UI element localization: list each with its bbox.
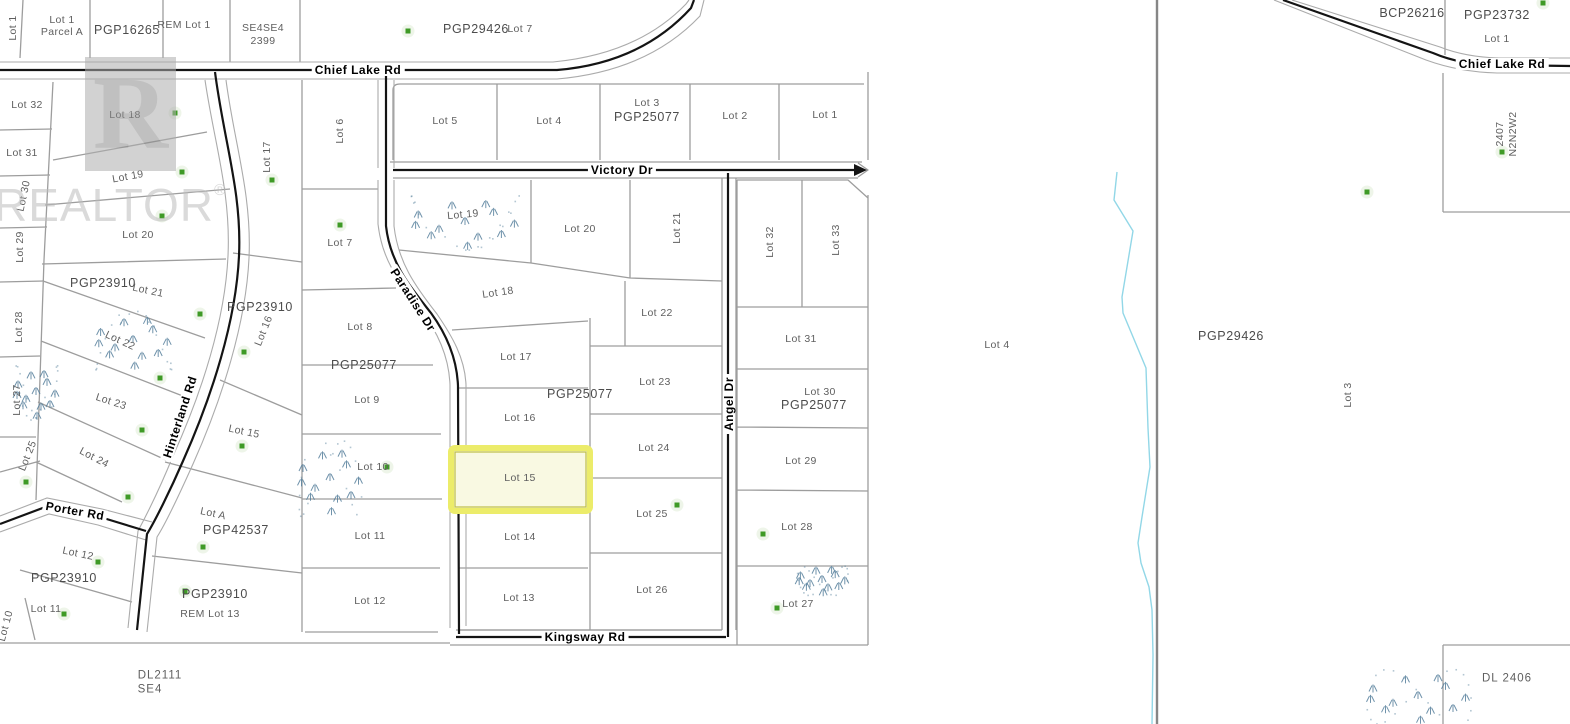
- label-lot-15: Lot 15: [227, 424, 260, 441]
- label-lot-17: Lot 17: [500, 352, 532, 363]
- label-paradise-dr: Paradise Dr: [387, 264, 440, 336]
- label-lot-27: Lot 27: [12, 384, 23, 416]
- label-lot-31: Lot 31: [785, 334, 817, 345]
- label-lot-16: Lot 16: [504, 413, 536, 424]
- label-lot-11: Lot 11: [355, 531, 386, 542]
- label-lot-27: Lot 27: [782, 599, 814, 610]
- label-2407: 2407: [1495, 122, 1506, 147]
- label-pgp25077: PGP25077: [331, 359, 397, 372]
- label-lot-10: Lot 10: [0, 609, 15, 642]
- label-lot-29: Lot 29: [785, 456, 817, 467]
- label-2399: 2399: [251, 36, 276, 47]
- label-lot-1: Lot 1: [49, 15, 74, 26]
- label-lot-30: Lot 30: [16, 179, 33, 212]
- label-rem-lot-1: REM Lot 1: [157, 20, 210, 31]
- label-parcel-a: Parcel A: [41, 27, 83, 38]
- label-lot-3: Lot 3: [634, 98, 659, 109]
- label-n2n2w2: N2N2W2: [1508, 112, 1519, 157]
- label-pgp23910: PGP23910: [70, 277, 136, 290]
- label-lot-9: Lot 9: [354, 395, 379, 406]
- label-lot-12: Lot 12: [61, 546, 94, 563]
- label-lot-22: Lot 22: [641, 308, 673, 319]
- label-se4: SE4: [138, 684, 163, 696]
- label-lot-3: Lot 3: [1343, 382, 1354, 407]
- label-lot-24: Lot 24: [638, 443, 670, 454]
- label-lot-13: Lot 13: [503, 593, 535, 604]
- label-lot-23: Lot 23: [639, 377, 671, 388]
- label-kingsway-rd: Kingsway Rd: [542, 631, 629, 643]
- label-lot-28: Lot 28: [14, 311, 25, 343]
- label-rem-lot-13: REM Lot 13: [180, 609, 239, 620]
- label-lot-14: Lot 14: [504, 532, 536, 543]
- label-se4se4: SE4SE4: [242, 23, 284, 34]
- label-lot-21: Lot 21: [131, 283, 164, 300]
- label-lot-7: Lot 7: [327, 238, 352, 249]
- label-lot-18: Lot 18: [482, 286, 515, 301]
- label-pgp29426: PGP29426: [443, 23, 509, 36]
- label-lot-10: Lot 10: [357, 462, 389, 473]
- label-dl-2406: DL 2406: [1482, 673, 1532, 685]
- label-lot-26: Lot 26: [636, 585, 668, 596]
- label-lot-23: Lot 23: [94, 392, 127, 412]
- label-pgp16265: PGP16265: [94, 24, 160, 37]
- label-lot-1: Lot 1: [1484, 34, 1509, 45]
- label-lot-33: Lot 33: [831, 224, 842, 256]
- label-lot-17: Lot 17: [262, 141, 273, 173]
- label-lot-21: Lot 21: [672, 212, 683, 244]
- label-lot-32: Lot 32: [765, 226, 776, 258]
- label-lot-6: Lot 6: [335, 118, 346, 143]
- label-hinterland-rd: Hinterland Rd: [160, 372, 200, 462]
- map-labels: Lot 1Lot 1Parcel APGP16265REM Lot 1SE4SE…: [0, 0, 1570, 724]
- label-lot-19: Lot 19: [447, 208, 479, 221]
- label-lot-31: Lot 31: [6, 148, 38, 159]
- cadastral-map: Lot 1Lot 1Parcel APGP16265REM Lot 1SE4SE…: [0, 0, 1570, 724]
- label-chief-lake-rd: Chief Lake Rd: [1456, 58, 1549, 70]
- label-lot-4: Lot 4: [984, 340, 1009, 351]
- label-pgp25077: PGP25077: [547, 388, 613, 401]
- label-pgp42537: PGP42537: [203, 524, 269, 537]
- label-porter-rd: Porter Rd: [42, 499, 108, 522]
- label-lot-20: Lot 20: [122, 230, 154, 241]
- label-lot-7: Lot 7: [507, 24, 532, 35]
- label-pgp29426: PGP29426: [1198, 330, 1264, 343]
- label-lot-1: Lot 1: [812, 110, 837, 121]
- label-lot-11: Lot 11: [31, 604, 62, 615]
- label-pgp25077: PGP25077: [781, 399, 847, 412]
- label-pgp25077: PGP25077: [614, 111, 680, 124]
- label-lot-1: Lot 1: [8, 15, 19, 40]
- label-lot-30: Lot 30: [804, 387, 836, 398]
- label-lot-2: Lot 2: [722, 111, 747, 122]
- label-lot-32: Lot 32: [11, 100, 43, 111]
- label-victory-dr: Victory Dr: [588, 164, 656, 176]
- label-lot-19: Lot 19: [112, 169, 145, 185]
- label-lot-25: Lot 25: [636, 509, 668, 520]
- label-pgp23910: PGP23910: [182, 588, 248, 601]
- label-pgp23910: PGP23910: [31, 572, 97, 585]
- label-angel-dr: Angel Dr: [723, 374, 735, 434]
- label-lot-25: Lot 25: [17, 439, 39, 472]
- label-pgp23732: PGP23732: [1464, 9, 1530, 22]
- label-lot-24: Lot 24: [78, 446, 111, 470]
- label-pgp23910: PGP23910: [227, 301, 293, 314]
- label-lot-12: Lot 12: [354, 596, 386, 607]
- label-lot-18: Lot 18: [109, 110, 141, 121]
- label-lot-29: Lot 29: [15, 231, 26, 263]
- label-lot-28: Lot 28: [781, 522, 813, 533]
- label-dl2111: DL2111: [138, 670, 183, 682]
- label-lot-22: Lot 22: [103, 330, 136, 353]
- label-lot-20: Lot 20: [564, 224, 596, 235]
- label-lot-5: Lot 5: [432, 116, 457, 127]
- label-bcp26216: BCP26216: [1379, 7, 1444, 20]
- label-lot-4: Lot 4: [536, 116, 561, 127]
- label-chief-lake-rd: Chief Lake Rd: [312, 64, 405, 76]
- label-lot-a: Lot A: [199, 506, 227, 522]
- label-lot-8: Lot 8: [347, 322, 372, 333]
- label-lot-16: Lot 16: [253, 314, 275, 347]
- label-lot-15: Lot 15: [504, 473, 536, 484]
